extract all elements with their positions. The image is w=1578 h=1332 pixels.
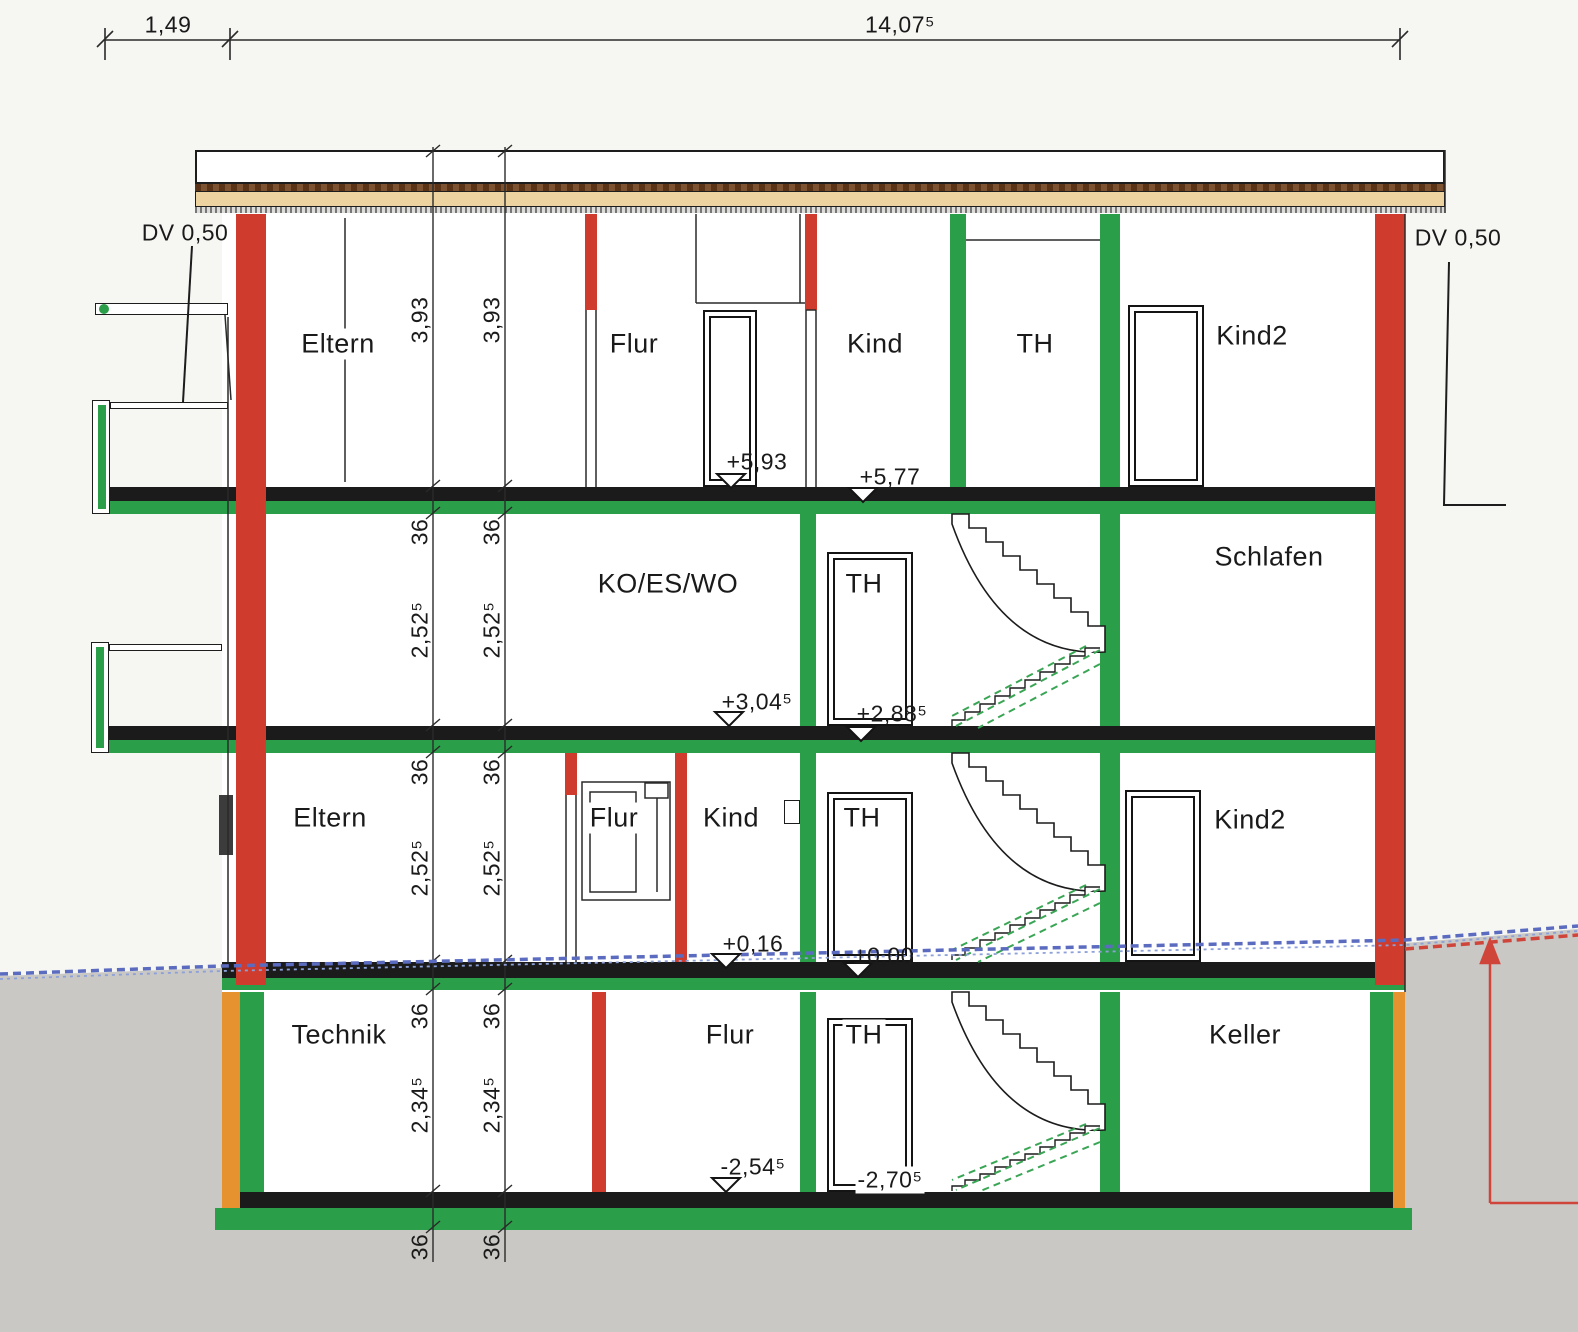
top-dimension-line [97, 28, 1408, 60]
vdim-kg-height-2: 2,34⁵ [479, 1077, 506, 1134]
building-section-drawing: 1,49 14,07⁵ DV 0,50 DV 0,50 Eltern Flur … [0, 0, 1578, 1332]
room-eg-th: TH [841, 803, 884, 834]
vdim-kg-height-1: 2,34⁵ [407, 1077, 434, 1134]
elevation-og1-slab: +2,88⁵ [857, 701, 928, 728]
room-eg-eltern: Eltern [293, 803, 367, 834]
vdim-og1-height-2: 2,52⁵ [479, 602, 506, 659]
vdim-og1-height-1: 2,52⁵ [407, 602, 434, 659]
vdim-eg-height-2: 2,52⁵ [479, 840, 506, 897]
marker-og2-floor-triangle [717, 474, 745, 488]
room-og1-th: TH [846, 569, 883, 600]
room-eg-kind: Kind [703, 803, 759, 834]
elevation-eg-slab: ±0,00 [854, 943, 914, 970]
vdim-slab2-2: 36 [479, 759, 506, 786]
elevation-kg-slab: -2,70⁵ [856, 1167, 925, 1194]
room-eg-flur: Flur [587, 803, 642, 834]
vdim-og2-height-2: 3,93 [479, 297, 506, 344]
vdim-baseslab-1: 36 [407, 1234, 434, 1261]
room-og1-koeswo: KO/ES/WO [598, 569, 739, 600]
room-og2-kind: Kind [847, 329, 903, 360]
vdim-baseslab-2: 36 [479, 1234, 506, 1261]
terrain-line-blue [0, 926, 1578, 979]
elevation-og2-floor: +5,93 [727, 449, 788, 476]
elevation-eg-floor: +0,16 [723, 931, 784, 958]
stairs-eg [952, 753, 1105, 962]
room-og1-schlafen: Schlafen [1214, 542, 1323, 573]
room-og2-flur: Flur [610, 329, 659, 360]
vdim-slab2-1: 36 [407, 759, 434, 786]
vdim-eg-height-1: 2,52⁵ [407, 840, 434, 897]
room-kg-technik: Technik [291, 1020, 386, 1051]
stairs-og1 [952, 514, 1105, 728]
vdim-slab1-2: 36 [479, 519, 506, 546]
dv-leader-lines [183, 246, 1506, 505]
eg-flur-closet [582, 782, 670, 900]
room-eg-kind2: Kind2 [1214, 805, 1286, 836]
vdim-og2-height-1: 3,93 [407, 297, 434, 344]
room-og2-kind2: Kind2 [1216, 321, 1288, 352]
vdim-slab3-1: 36 [407, 1003, 434, 1030]
elevation-og2-slab: +5,77 [860, 464, 921, 491]
room-og2-th: TH [1017, 329, 1054, 360]
dimension-left: 1,49 [145, 12, 192, 39]
dv-label-left: DV 0,50 [142, 220, 229, 247]
room-og2-eltern: Eltern [297, 329, 379, 360]
awning-bracket-dot [99, 304, 109, 314]
dv-label-right: DV 0,50 [1415, 225, 1502, 252]
section-linework [0, 0, 1578, 1332]
vdim-slab3-2: 36 [479, 1003, 506, 1030]
room-kg-th: TH [843, 1020, 886, 1051]
elevation-kg-floor: -2,54⁵ [721, 1154, 786, 1181]
dimension-main: 14,07⁵ [865, 12, 935, 39]
vdim-slab1-1: 36 [407, 519, 434, 546]
room-kg-keller: Keller [1209, 1020, 1281, 1051]
terrain-reference-arrow [1481, 940, 1578, 1203]
marker-og1-slab-triangle [847, 727, 875, 741]
stairs-kg [952, 992, 1105, 1192]
room-kg-flur: Flur [706, 1020, 755, 1051]
elevation-og1-floor: +3,04⁵ [722, 689, 793, 716]
